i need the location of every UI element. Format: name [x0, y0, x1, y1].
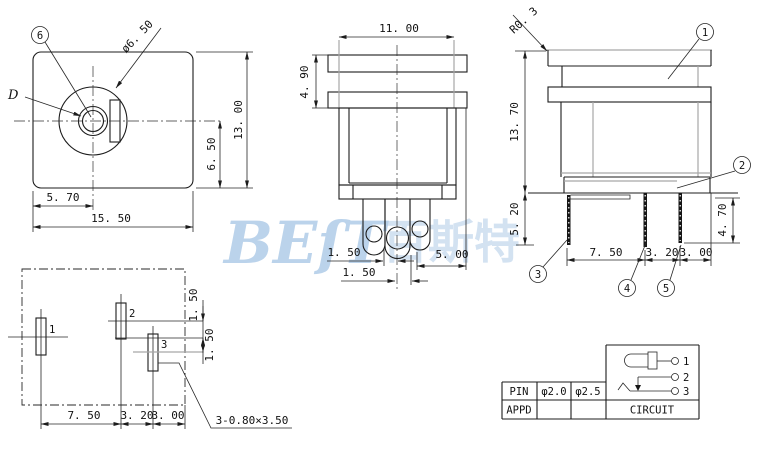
pcb-pad-2-label: 2	[129, 308, 135, 320]
side-pin-right-dim: 4. 70	[716, 203, 729, 236]
side-pitch-c-dim: 3. 00	[679, 246, 712, 259]
pcb-pad-1-label: 1	[49, 324, 55, 336]
side-radius-dim: R0. 3	[507, 4, 540, 36]
terminal-3-label: 3	[683, 386, 689, 398]
pcb-layout-view: 1 2 3 1. 50 1. 50 7. 50 3. 20 3. 00 3-0.…	[8, 269, 292, 429]
terminal-2-label: 2	[683, 372, 689, 384]
front-width-dim: 15. 50	[91, 212, 131, 225]
top-pin-offset-b-dim: 1. 50	[342, 266, 375, 279]
balloon-5-label: 5	[663, 283, 669, 295]
side-height-dim: 13. 70	[508, 102, 521, 142]
table-cell-circuit: CIRCUIT	[630, 405, 675, 417]
side-pin3-bracket	[571, 195, 631, 199]
front-center-height-dim: 6. 50	[205, 137, 218, 170]
spring-contact-symbol	[618, 383, 630, 391]
drawing-canvas: BEſT 百斯特 6 D ø6. 50 13. 00 6. 50 5. 70 1…	[0, 0, 759, 451]
balloon-4-label: 4	[624, 283, 630, 295]
circuit-schematic: 1 2 3	[618, 352, 689, 398]
top-pin-offset-a-dim: 1. 50	[327, 246, 360, 259]
terminal-1-node	[672, 358, 679, 365]
table-cell-pin: PIN	[510, 386, 529, 398]
front-diameter-dim: ø6. 50	[119, 18, 156, 56]
switch-contact-arrow	[635, 385, 641, 391]
pcb-pad-3-label: 3	[161, 339, 167, 351]
pcb-pitch-b-dim: 3. 20	[120, 409, 153, 422]
side-flange-2	[548, 87, 711, 102]
side-view: R0. 3 13. 70 5. 20 4. 70 7. 50 3. 20 3. …	[507, 4, 750, 296]
pcb-pitch-c-dim: 3. 00	[151, 409, 184, 422]
plug-collar-symbol	[648, 352, 657, 369]
top-flange-dim: 4. 90	[298, 65, 311, 98]
top-body	[339, 108, 456, 185]
terminal-2-node	[672, 374, 679, 381]
top-pin-right-dim: 5. 00	[435, 248, 468, 261]
front-view: 6 D ø6. 50 13. 00 6. 50 5. 70 15. 50	[7, 18, 253, 232]
balloon-2-label: 2	[739, 160, 745, 172]
table-cell-appd: APPD	[506, 405, 531, 417]
balloon-1-label: 1	[702, 27, 708, 39]
table-cell-dia25: φ2.5	[575, 386, 600, 398]
terminal-3-node	[672, 388, 679, 395]
top-base	[339, 185, 456, 199]
spec-table: PIN φ2.0 φ2.5 APPD CIRCUIT 1 2 3	[502, 345, 699, 419]
side-pitch-b-dim: 3. 20	[645, 246, 678, 259]
front-height-dim: 13. 00	[232, 100, 245, 140]
slot-note-text: 3-0.80×3.50	[216, 414, 289, 427]
engineering-drawing-page: BEſT 百斯特 6 D ø6. 50 13. 00 6. 50 5. 70 1…	[0, 0, 759, 451]
pcb-offset-a-dim: 1. 50	[187, 288, 200, 321]
side-pitch-a-dim: 7. 50	[589, 246, 622, 259]
top-flange-1	[328, 55, 467, 72]
top-width-dim: 11. 00	[379, 22, 419, 35]
balloon-6-label: 6	[37, 30, 43, 42]
front-housing-outline	[33, 52, 193, 188]
balloon-3-label: 3	[535, 269, 541, 281]
top-flange-2	[328, 92, 467, 108]
d-diameter-label: D	[7, 88, 19, 103]
plug-barrel-symbol	[625, 354, 649, 367]
terminal-1-label: 1	[683, 356, 689, 368]
pcb-pitch-a-dim: 7. 50	[67, 409, 100, 422]
side-pin-left-dim: 5. 20	[508, 202, 521, 235]
pcb-offset-b-dim: 1. 50	[203, 328, 216, 361]
table-cell-dia20: φ2.0	[541, 386, 566, 398]
front-center-offset-dim: 5. 70	[46, 191, 79, 204]
